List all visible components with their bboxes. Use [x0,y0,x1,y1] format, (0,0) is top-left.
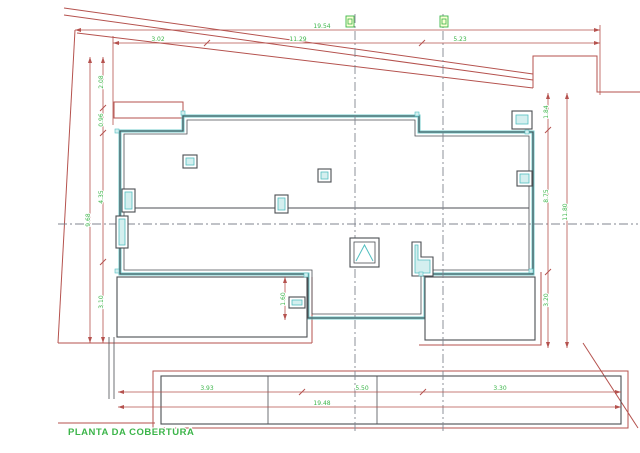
svg-text:2.08: 2.08 [98,75,105,89]
site-boundary-lines [58,8,640,428]
corner-grip-icon [525,130,529,134]
dim-left-segments: 2.08 0.96 4.35 3.10 [98,57,106,343]
drawing-title: PLANTA DA COBERTURA [68,427,194,438]
skylight [275,195,288,213]
skylight-left-edge [122,189,135,212]
skylight [318,169,331,182]
section-marker-icon [346,16,354,27]
corner-grip-icon [115,269,119,273]
neighbor-roof-line [64,15,533,80]
svg-text:11.29: 11.29 [289,36,306,43]
skylight [517,171,532,186]
svg-text:19.54: 19.54 [313,23,330,30]
skylight [183,155,197,168]
svg-text:8.75: 8.75 [543,189,550,203]
terrace-left [117,277,307,337]
svg-text:1.60: 1.60 [280,292,287,306]
dim-right-total: 11.80 [562,93,569,348]
svg-text:3.20: 3.20 [543,293,550,307]
svg-text:19.48: 19.48 [313,400,330,407]
dim-top-segments: 3.02 11.29 5.23 [113,36,600,46]
svg-text:3.93: 3.93 [200,385,214,392]
corner-grip-icon [181,111,185,115]
skylight-left-edge [116,216,128,248]
chimney-l-shape [412,242,433,276]
lower-terrace-inner-outline [161,376,621,424]
corner-grip-icon [115,129,119,133]
dimensions: 19.54 3.02 11.29 5.23 2.08 0.96 4.35 3.1… [75,23,621,407]
svg-text:0.96: 0.96 [98,113,105,127]
svg-text:5.50: 5.50 [355,385,369,392]
roof-plan-drawing: 19.54 3.02 11.29 5.23 2.08 0.96 4.35 3.1… [0,0,640,453]
neighbor-structure-outline [114,102,183,118]
svg-text:11.80: 11.80 [562,203,569,220]
dim-left-total: 9.68 [85,57,92,343]
svg-text:5.23: 5.23 [453,36,467,43]
corner-grip-icon [529,269,533,273]
svg-text:4.35: 4.35 [98,190,105,204]
dim-top-total: 19.54 [75,23,600,30]
section-markers [346,16,448,27]
roof-access-hatch [350,238,379,267]
section-marker-icon [440,16,448,27]
dim-bottom-segments: 3.93 5.50 3.30 [118,385,621,395]
corner-grip-icon [304,273,308,277]
skylight-top-right [512,111,532,129]
corner-grip-icon [419,272,423,276]
dim-bottom-total: 19.48 [118,400,621,407]
roof-plan-canvas: 19.54 3.02 11.29 5.23 2.08 0.96 4.35 3.1… [0,0,640,453]
svg-text:1.84: 1.84 [543,105,550,119]
terrace-right [425,277,535,340]
site-boundary-left [58,30,75,343]
dim-right-segments: 1.84 8.75 3.20 [543,93,551,348]
corner-grip-icon [415,112,419,116]
svg-text:3.02: 3.02 [151,36,165,43]
site-boundary-diagonal [583,343,638,428]
svg-text:9.68: 9.68 [85,213,92,227]
svg-text:3.30: 3.30 [493,385,507,392]
roof-vent [289,297,305,308]
site-boundary-right-step [533,56,640,92]
svg-text:3.10: 3.10 [98,295,105,309]
lower-terrace-outer-outline [153,371,628,428]
